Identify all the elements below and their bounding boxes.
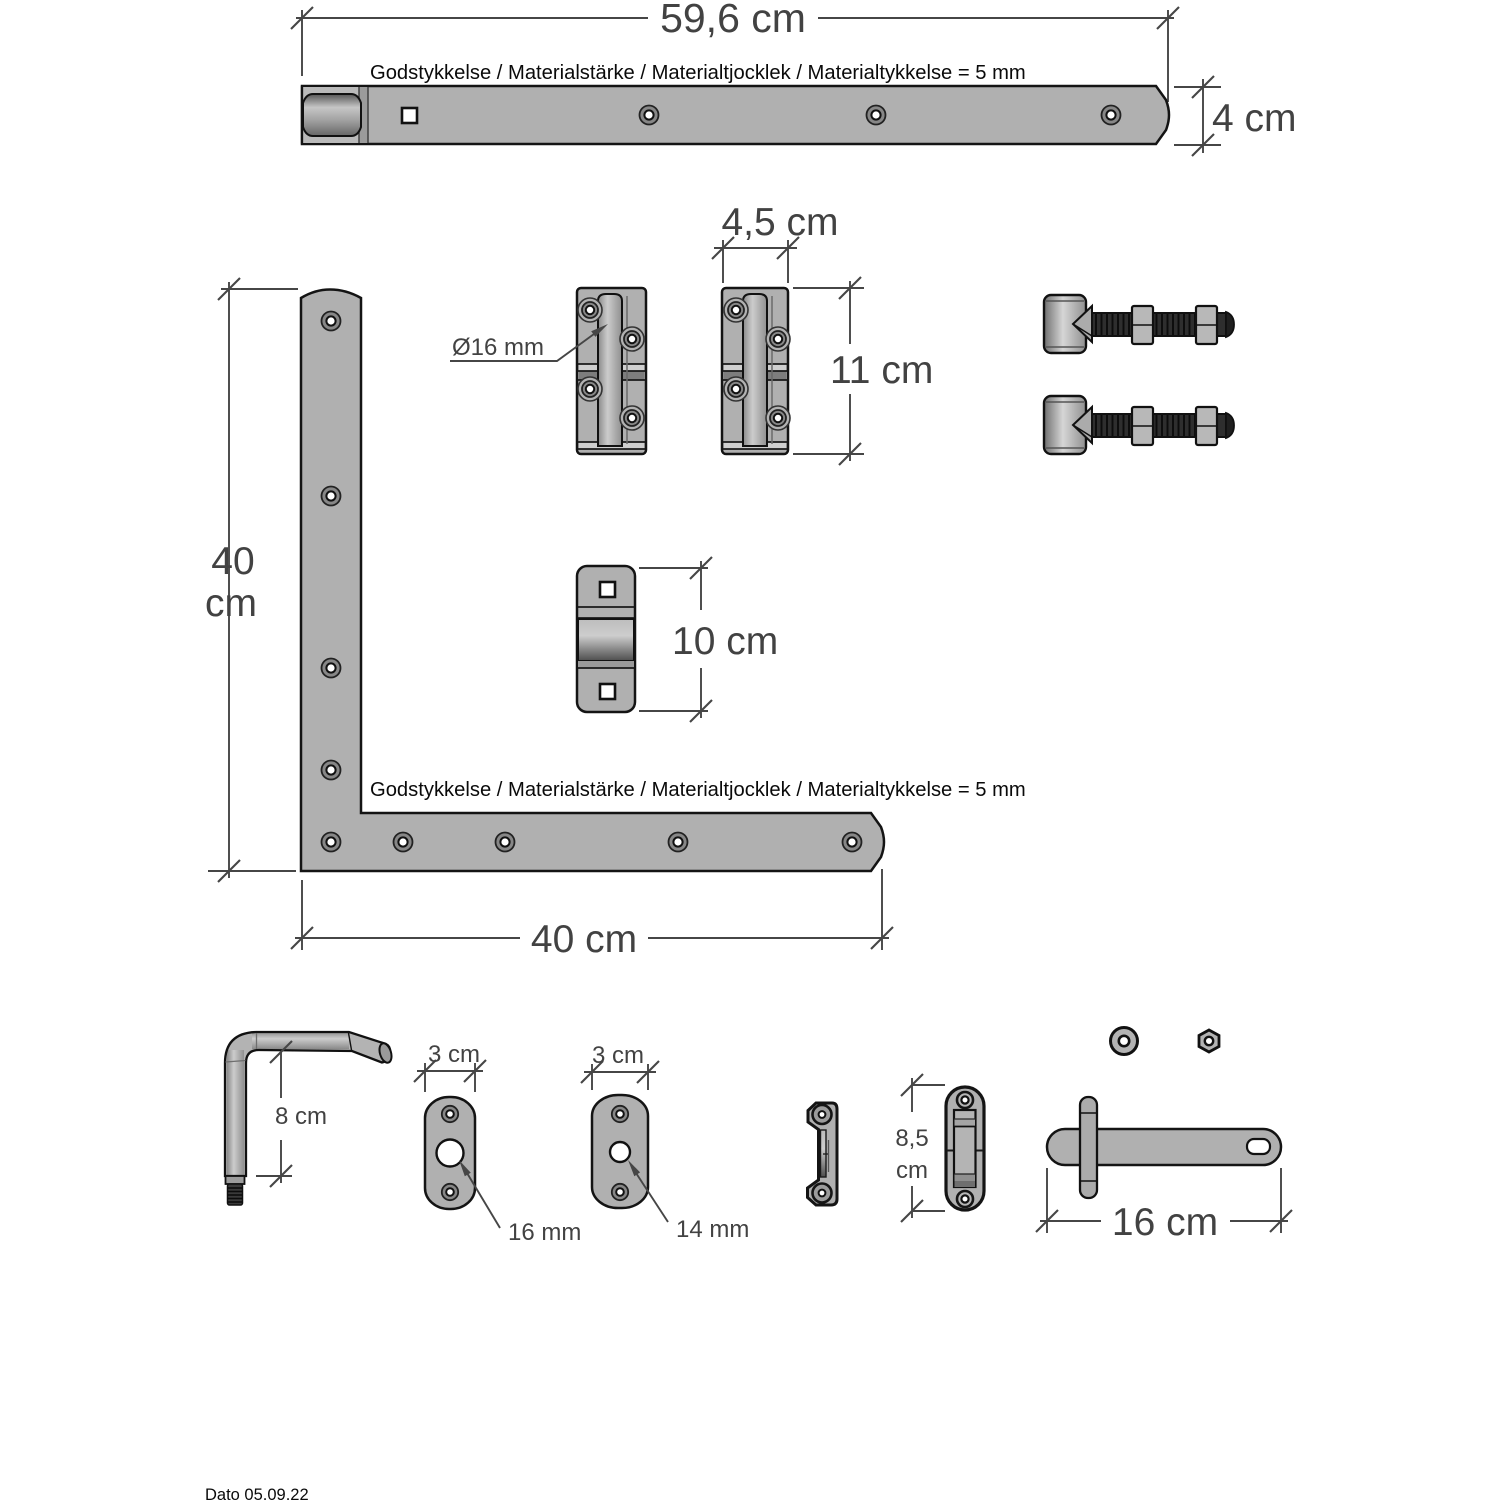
svg-text:8 cm: 8 cm <box>275 1103 327 1130</box>
svg-text:10 cm: 10 cm <box>672 620 778 663</box>
svg-text:8,5: 8,5 <box>895 1125 928 1152</box>
svg-text:40 cm: 40 cm <box>531 918 637 961</box>
svg-text:Godstykkelse / Materialstärke: Godstykkelse / Materialstärke / Material… <box>370 779 1026 801</box>
svg-text:cm: cm <box>205 582 257 625</box>
svg-text:3 cm: 3 cm <box>428 1041 480 1068</box>
svg-text:4,5 cm: 4,5 cm <box>721 201 838 244</box>
svg-text:Dato 05.09.22: Dato 05.09.22 <box>205 1486 309 1500</box>
svg-text:3 cm: 3 cm <box>592 1042 644 1069</box>
svg-text:4 cm: 4 cm <box>1212 97 1297 140</box>
svg-text:59,6 cm: 59,6 cm <box>660 0 806 41</box>
svg-text:14 mm: 14 mm <box>676 1216 749 1243</box>
svg-text:16 cm: 16 cm <box>1112 1201 1218 1244</box>
svg-text:Godstykkelse / Materialstärke: Godstykkelse / Materialstärke / Material… <box>370 62 1026 84</box>
svg-text:cm: cm <box>896 1157 928 1184</box>
svg-text:11 cm: 11 cm <box>830 349 933 392</box>
svg-text:40: 40 <box>211 540 254 583</box>
svg-text:16 mm: 16 mm <box>508 1219 581 1246</box>
svg-text:Ø16 mm: Ø16 mm <box>452 334 544 361</box>
